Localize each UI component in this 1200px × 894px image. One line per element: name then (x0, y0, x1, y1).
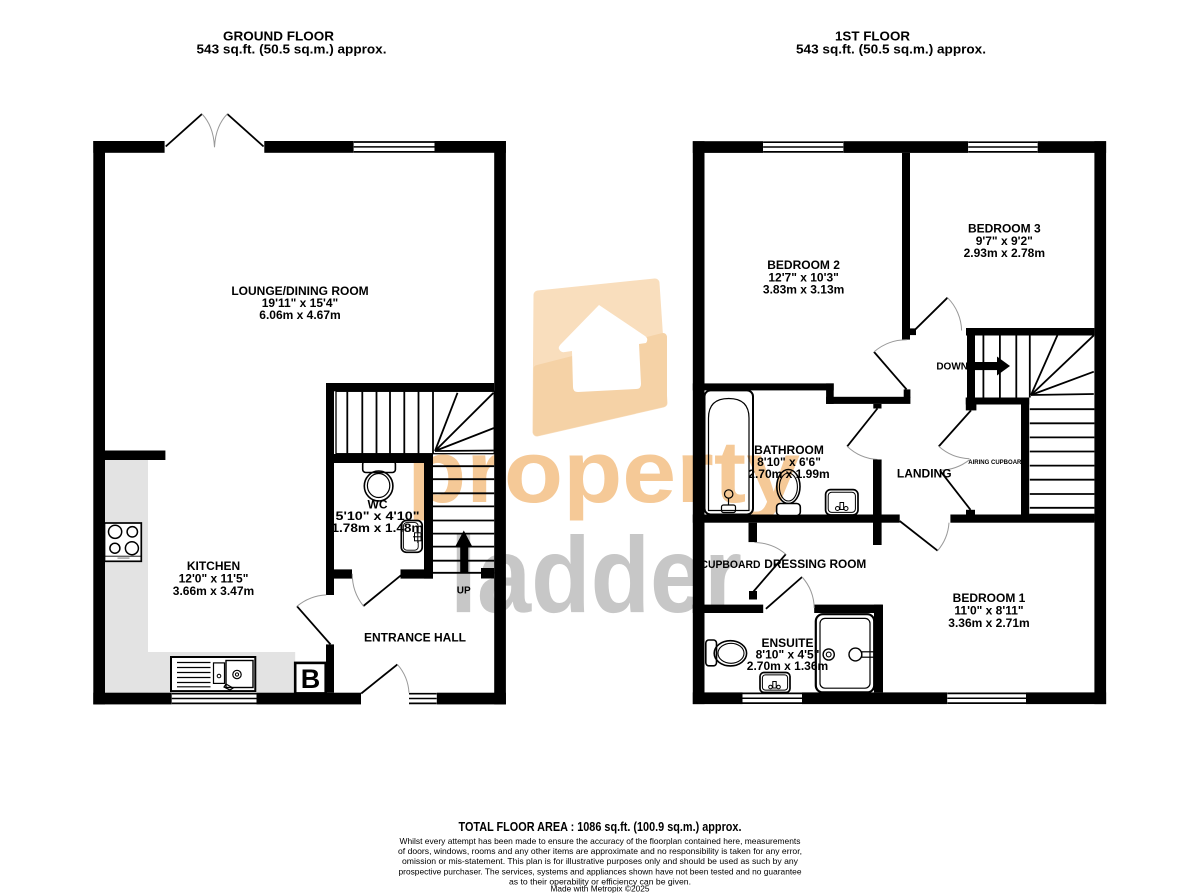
svg-text:Made with Metropix ©2025: Made with Metropix ©2025 (551, 884, 650, 894)
svg-text:prospective purchaser. The ser: prospective purchaser. The services, sys… (399, 866, 802, 876)
svg-text:543 sq.ft. (50.5 sq.m.) approx: 543 sq.ft. (50.5 sq.m.) approx. (197, 42, 387, 57)
svg-text:AIRING CUPBOARD: AIRING CUPBOARD (968, 459, 1026, 466)
svg-text:543 sq.ft. (50.5 sq.m.) approx: 543 sq.ft. (50.5 sq.m.) approx. (796, 42, 986, 57)
svg-text:3.36m x 2.71m: 3.36m x 2.71m (948, 616, 1029, 630)
svg-text:of doors, windows, rooms and a: of doors, windows, rooms and any other i… (398, 846, 802, 856)
svg-text:DOWN: DOWN (936, 361, 968, 372)
svg-text:DRESSING ROOM: DRESSING ROOM (764, 559, 866, 571)
svg-text:2.70m x 1.99m: 2.70m x 1.99m (748, 467, 829, 481)
svg-text:CUPBOARD: CUPBOARD (701, 559, 761, 571)
svg-text:UP: UP (457, 586, 471, 597)
svg-text:2.70m x 1.36m: 2.70m x 1.36m (747, 659, 828, 673)
svg-text:3.66m x 3.47m: 3.66m x 3.47m (173, 584, 254, 598)
svg-text:ENTRANCE HALL: ENTRANCE HALL (364, 631, 466, 645)
svg-text:1.78m x 1.48m: 1.78m x 1.48m (332, 521, 424, 535)
svg-text:Whilst every attempt has been: Whilst every attempt has been made to en… (400, 836, 801, 846)
svg-text:6.06m x 4.67m: 6.06m x 4.67m (259, 308, 340, 322)
svg-text:LANDING: LANDING (897, 467, 952, 481)
svg-text:2.93m x 2.78m: 2.93m x 2.78m (964, 246, 1045, 260)
svg-text:B: B (301, 664, 321, 694)
svg-text:omission or mis-statement. Thi: omission or mis-statement. This plan is … (402, 856, 799, 866)
svg-text:TOTAL FLOOR AREA : 1086 sq.ft.: TOTAL FLOOR AREA : 1086 sq.ft. (100.9 sq… (459, 820, 742, 834)
svg-text:3.83m x 3.13m: 3.83m x 3.13m (763, 283, 844, 297)
